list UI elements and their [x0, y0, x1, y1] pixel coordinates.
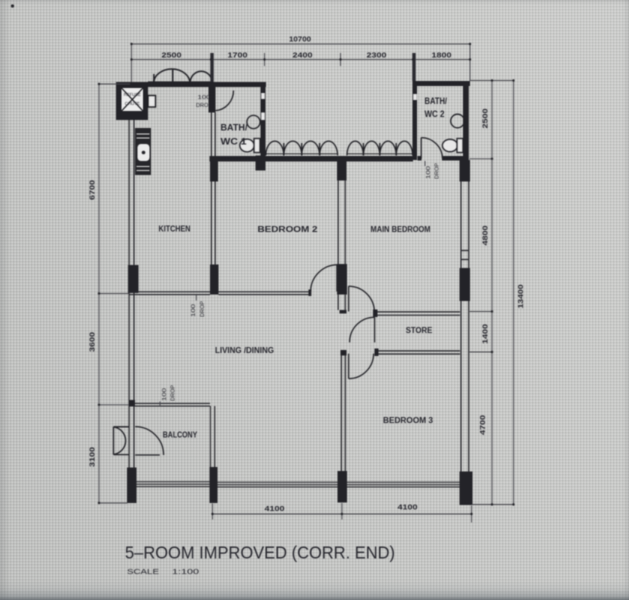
svg-text:STORE: STORE	[406, 325, 433, 335]
svg-text:5–ROOM IMPROVED (CORR. END): 5–ROOM IMPROVED (CORR. END)	[125, 543, 395, 563]
svg-text:2400: 2400	[293, 50, 313, 59]
svg-text:1800: 1800	[432, 50, 452, 59]
svg-text:DROP: DROP	[435, 163, 441, 179]
svg-text:BEDROOM 2: BEDROOM 2	[258, 224, 318, 234]
svg-text:DROP: DROP	[200, 301, 206, 317]
svg-text:DROP: DROP	[171, 385, 177, 401]
svg-text:4800: 4800	[481, 226, 490, 246]
svg-text:100: 100	[191, 304, 197, 317]
svg-text:100: 100	[162, 388, 168, 401]
svg-text:6700: 6700	[88, 180, 97, 200]
svg-text:BALCONY: BALCONY	[163, 430, 198, 440]
svg-text:BATH/: BATH/	[221, 123, 248, 134]
svg-text:3600: 3600	[88, 332, 97, 352]
svg-text:2500: 2500	[481, 109, 490, 129]
svg-text:MAIN BEDROOM: MAIN BEDROOM	[371, 224, 431, 234]
svg-text:100: 100	[198, 95, 211, 101]
svg-text:BATH/: BATH/	[425, 96, 448, 107]
svg-text:BEDROOM 3: BEDROOM 3	[383, 415, 433, 425]
svg-text:4700: 4700	[478, 415, 487, 435]
svg-text:REFUSE: REFUSE	[124, 92, 141, 97]
svg-text:KITCHEN: KITCHEN	[159, 224, 191, 234]
svg-text:SCALE: SCALE	[127, 569, 159, 576]
svg-text:4100: 4100	[265, 504, 285, 513]
svg-text:4100: 4100	[398, 503, 418, 512]
svg-text:3100: 3100	[88, 447, 97, 467]
svg-text:2500: 2500	[162, 50, 182, 59]
svg-text:1700: 1700	[228, 50, 248, 59]
svg-text:13400: 13400	[516, 285, 525, 309]
svg-text:1400: 1400	[481, 324, 490, 344]
svg-text:CHUTE: CHUTE	[125, 101, 140, 106]
svg-text:10700: 10700	[289, 35, 311, 44]
svg-text:WC 2: WC 2	[425, 109, 445, 120]
svg-text:1:100: 1:100	[172, 569, 199, 576]
svg-text:DROP: DROP	[196, 103, 212, 109]
svg-text:LIVING /DINING: LIVING /DINING	[215, 345, 274, 355]
svg-text:100: 100	[426, 166, 432, 179]
svg-text:2300: 2300	[367, 50, 387, 59]
svg-text:WC 1: WC 1	[221, 137, 248, 148]
